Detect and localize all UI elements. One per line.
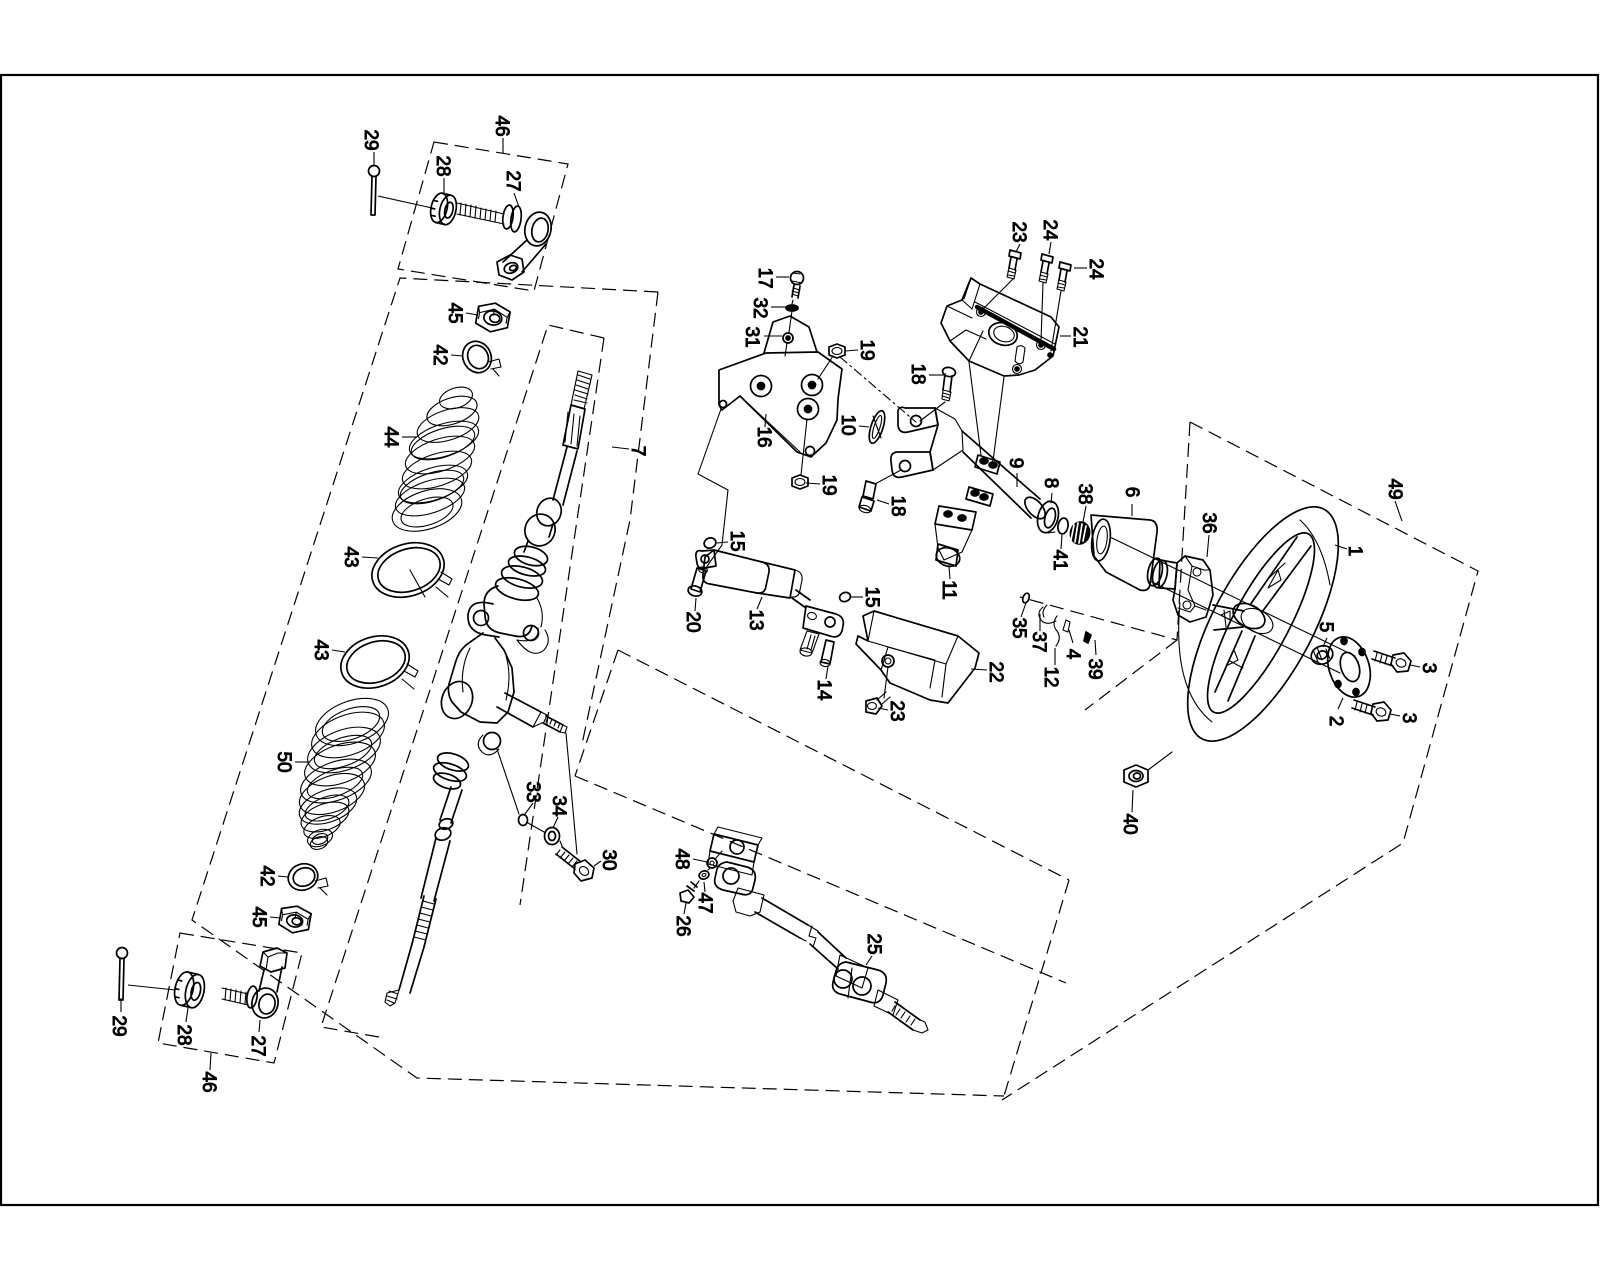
svg-text:25: 25 [863,933,884,954]
svg-text:47: 47 [694,892,715,913]
svg-text:27: 27 [502,170,523,191]
svg-text:39: 39 [1084,658,1105,679]
svg-text:4: 4 [1062,649,1083,660]
svg-text:42: 42 [429,344,450,365]
svg-text:35: 35 [1008,617,1029,638]
svg-text:18: 18 [887,495,908,516]
svg-text:21: 21 [1069,326,1090,347]
svg-text:14: 14 [813,679,834,701]
svg-text:33: 33 [522,781,543,802]
svg-text:43: 43 [310,639,331,660]
svg-text:28: 28 [173,1024,194,1045]
svg-text:10: 10 [837,414,858,435]
svg-text:2: 2 [1325,716,1346,727]
svg-text:15: 15 [726,530,747,551]
svg-text:6: 6 [1121,487,1142,498]
svg-text:29: 29 [360,129,381,150]
svg-text:18: 18 [907,363,928,384]
svg-text:23: 23 [1008,221,1029,242]
svg-text:27: 27 [247,1035,268,1056]
svg-text:9: 9 [1005,458,1026,469]
svg-text:46: 46 [198,1071,219,1092]
svg-text:3: 3 [1418,663,1439,674]
svg-text:36: 36 [1198,512,1219,533]
svg-text:5: 5 [1315,622,1336,633]
svg-text:29: 29 [108,1015,129,1036]
svg-text:17: 17 [754,267,775,288]
svg-text:23: 23 [886,700,907,721]
svg-text:3: 3 [1398,713,1419,724]
svg-text:41: 41 [1049,549,1070,570]
svg-text:19: 19 [856,339,877,360]
svg-text:12: 12 [1040,666,1061,687]
svg-text:24: 24 [1039,219,1060,241]
svg-text:30: 30 [598,849,619,870]
svg-text:40: 40 [1119,813,1140,834]
svg-text:42: 42 [256,865,277,886]
svg-text:44: 44 [380,426,401,448]
svg-text:32: 32 [749,297,770,318]
svg-text:45: 45 [444,302,465,323]
svg-text:31: 31 [741,326,762,347]
svg-text:43: 43 [340,546,361,567]
svg-text:8: 8 [1040,478,1061,489]
svg-text:7: 7 [627,446,648,457]
svg-text:45: 45 [248,906,269,927]
svg-text:22: 22 [985,661,1006,682]
svg-text:28: 28 [432,155,453,176]
svg-text:38: 38 [1074,483,1095,504]
svg-text:26: 26 [672,915,693,936]
svg-text:24: 24 [1085,258,1106,280]
svg-text:50: 50 [273,751,294,772]
svg-text:11: 11 [938,580,959,600]
svg-text:1: 1 [1344,546,1365,557]
svg-text:46: 46 [491,115,512,136]
svg-text:19: 19 [818,474,839,495]
svg-text:34: 34 [548,795,569,817]
svg-text:20: 20 [682,611,703,632]
svg-text:37: 37 [1028,631,1049,652]
svg-text:13: 13 [745,609,766,630]
svg-text:49: 49 [1384,478,1405,499]
svg-text:15: 15 [861,586,882,607]
svg-text:16: 16 [753,426,774,447]
svg-text:48: 48 [671,848,692,869]
